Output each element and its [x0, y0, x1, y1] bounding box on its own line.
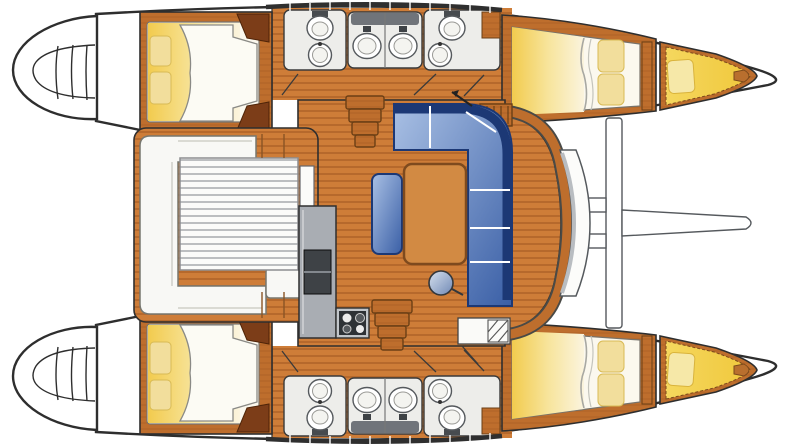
- berth-mattress: [512, 27, 584, 115]
- port-twin-basin-unit: [348, 12, 422, 68]
- catamaran-layout-drawing: Catamaran sailboat interior layout plan …: [0, 0, 800, 446]
- burner-icon: [343, 314, 352, 323]
- faucet-icon: [318, 42, 322, 46]
- sink-bowl: [313, 48, 328, 63]
- forepeak-bulkhead: [642, 42, 652, 110]
- starboard-aft-cabin: [140, 314, 272, 434]
- cockpit-table: [180, 158, 298, 270]
- saloon-table: [404, 164, 466, 264]
- transom-outline: [13, 16, 97, 119]
- faucet-icon: [363, 26, 371, 32]
- port-transom-platform: [13, 16, 97, 119]
- pillow: [150, 72, 171, 104]
- starboard-transom-platform: [13, 327, 97, 430]
- burner-icon: [356, 325, 364, 333]
- boat-floor-plan: Catamaran sailboat interior layout plan …: [0, 0, 800, 446]
- port-aft-cabin: [140, 12, 272, 132]
- pillow: [598, 74, 624, 105]
- pillow: [667, 59, 695, 94]
- toilet-bowl: [444, 22, 460, 36]
- pillow: [150, 36, 171, 66]
- port-forward-cabin: [502, 15, 656, 123]
- cockpit: [134, 128, 318, 322]
- port-forepeak: [660, 42, 757, 110]
- bowsprit: [622, 210, 751, 236]
- basin-bowl: [394, 38, 412, 54]
- head-locker: [482, 12, 500, 38]
- starboard-forward-cabin: [502, 323, 656, 431]
- pillow: [598, 40, 624, 72]
- faucet-icon: [438, 42, 442, 46]
- basin-bowl: [358, 38, 376, 54]
- port-aft-head: [284, 10, 346, 70]
- foredeck: [582, 118, 751, 328]
- port-hull-interior: [266, 2, 512, 100]
- starboard-forepeak: [660, 336, 757, 404]
- burner-icon: [356, 314, 365, 323]
- bow-tip-locker: [734, 70, 749, 82]
- burner-icon: [343, 325, 351, 333]
- sink-bowl: [433, 48, 448, 63]
- port-forward-head: [424, 10, 500, 70]
- saloon-bench-cushion: [372, 174, 402, 254]
- toilet-bowl: [312, 22, 328, 36]
- forward-crossbeam: [606, 118, 622, 328]
- faucet-icon: [399, 26, 407, 32]
